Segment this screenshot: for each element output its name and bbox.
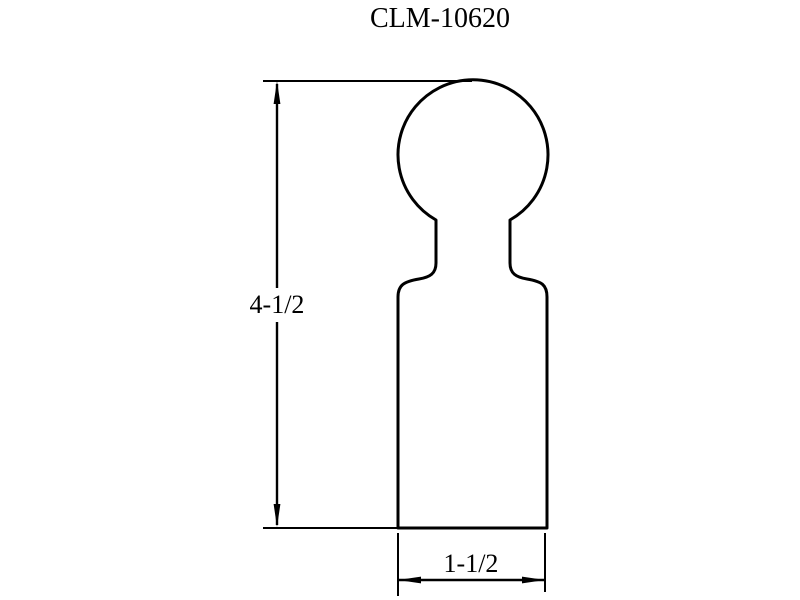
- arrow-left-icon: [398, 577, 421, 584]
- drawing-page: CLM-10620 4-1/2 1-1/2: [0, 0, 800, 600]
- arrow-down-icon: [274, 504, 281, 527]
- width-dimension-label: 1-1/2: [444, 549, 499, 578]
- arrow-up-icon: [274, 81, 281, 104]
- profile-outline: [398, 80, 548, 528]
- arrow-right-icon: [522, 577, 545, 584]
- profile-shape: [398, 80, 548, 528]
- height-dimension-label: 4-1/2: [250, 290, 305, 319]
- technical-drawing-canvas: CLM-10620 4-1/2 1-1/2: [0, 0, 800, 600]
- drawing-title: CLM-10620: [370, 3, 510, 34]
- width-dimension: 1-1/2: [398, 533, 545, 596]
- height-dimension: 4-1/2: [250, 81, 472, 528]
